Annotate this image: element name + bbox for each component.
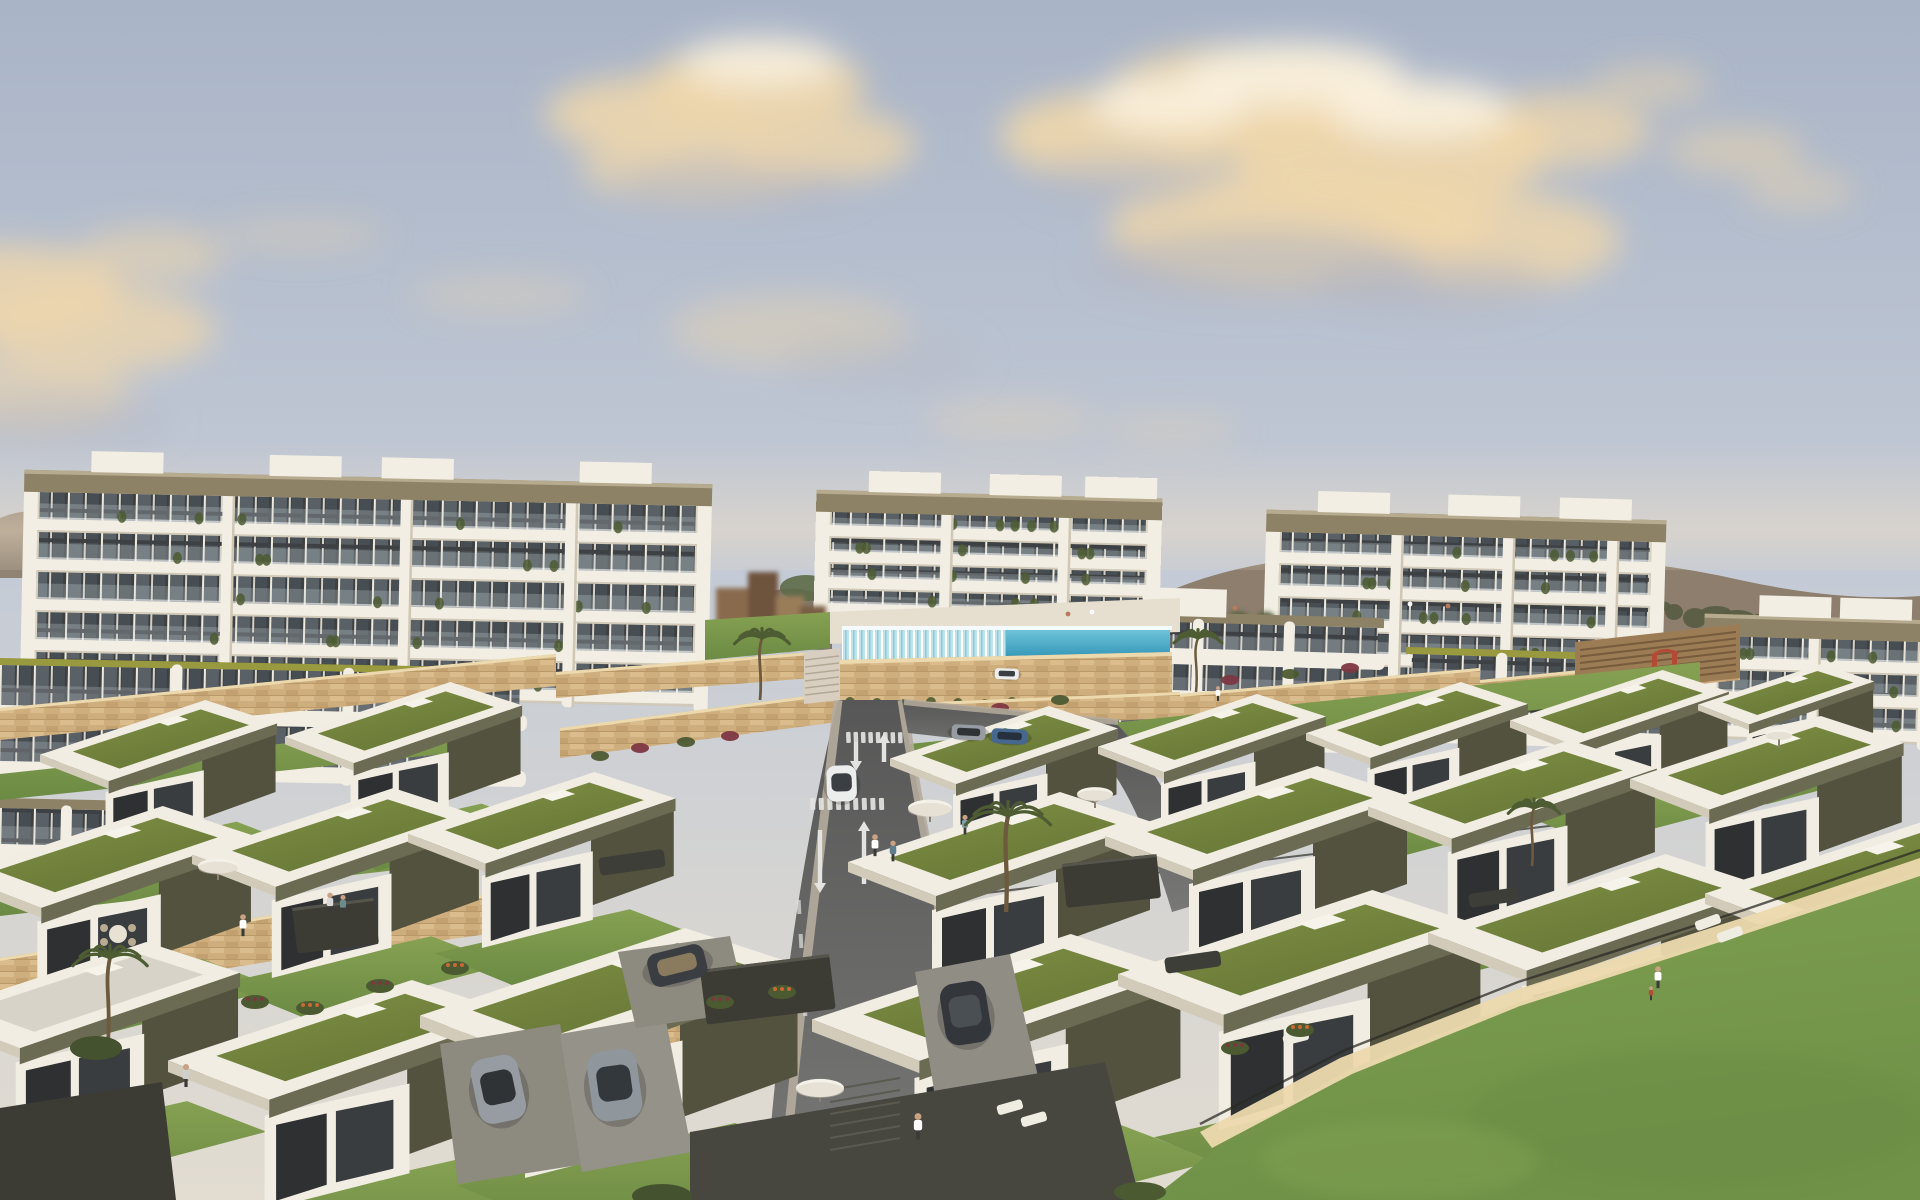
person-legs bbox=[916, 1129, 920, 1139]
scene-canvas: Architectural visualization at golden ho… bbox=[0, 0, 1920, 1200]
person-torso bbox=[327, 898, 333, 906]
planter-flower bbox=[385, 981, 389, 985]
cloud-puff bbox=[615, 161, 855, 209]
planter-flower bbox=[371, 981, 375, 985]
flower-bush bbox=[591, 751, 609, 761]
person-legs bbox=[892, 853, 895, 861]
person-torso bbox=[240, 920, 247, 929]
dining-chair bbox=[100, 938, 108, 946]
car-cabin bbox=[947, 993, 983, 1029]
rooftop-unit bbox=[269, 455, 341, 478]
crosswalk-bar bbox=[853, 732, 858, 743]
pool-rim bbox=[842, 626, 1172, 630]
pool-waterfall-edge bbox=[842, 630, 1006, 660]
lawn-shading bbox=[1470, 1050, 1920, 1190]
person-head bbox=[1655, 966, 1661, 972]
planter-flower bbox=[1298, 1025, 1302, 1029]
crosswalk-bar bbox=[810, 798, 815, 810]
cloud-puff bbox=[1090, 79, 1250, 131]
flower-bush bbox=[1281, 669, 1299, 679]
crosswalk-bar bbox=[898, 732, 903, 743]
crosswalk-bar bbox=[890, 732, 895, 743]
planter-flower bbox=[260, 997, 264, 1001]
person-legs bbox=[1217, 695, 1219, 701]
person-torso bbox=[340, 900, 346, 908]
person-torso bbox=[872, 840, 879, 849]
wall-planter bbox=[1221, 1041, 1249, 1055]
rooftop-unit bbox=[869, 471, 942, 494]
rooftop-unit bbox=[1085, 476, 1158, 499]
crosswalk-bar bbox=[861, 732, 866, 743]
crosswalk-bar bbox=[819, 798, 824, 810]
crosswalk-bar bbox=[879, 798, 884, 810]
person-head bbox=[1216, 686, 1220, 690]
planter-flower bbox=[301, 1003, 305, 1007]
planter-flower bbox=[246, 997, 250, 1001]
wall-planter bbox=[296, 1001, 324, 1015]
pool-deck-person bbox=[1408, 602, 1413, 607]
pool-deck-person bbox=[1090, 610, 1095, 615]
person-head bbox=[872, 834, 878, 840]
pool-deck-person bbox=[1233, 606, 1238, 611]
cloud-puff bbox=[780, 330, 980, 390]
person-legs bbox=[1650, 995, 1652, 1000]
crosswalk-bar bbox=[862, 798, 867, 810]
rooftop-unit bbox=[1448, 495, 1521, 518]
planter-flower bbox=[773, 987, 777, 991]
cloud-puff bbox=[680, 38, 840, 86]
car-cabin bbox=[999, 671, 1016, 677]
cloud-puff bbox=[1030, 152, 1210, 208]
person-torso bbox=[182, 1070, 189, 1079]
wall-planter bbox=[441, 961, 469, 975]
crosswalk-bar bbox=[846, 732, 851, 743]
ridge-tree bbox=[1665, 604, 1683, 620]
villa-glass-door bbox=[536, 864, 580, 927]
lane-dash bbox=[797, 900, 802, 914]
flower-bush bbox=[631, 743, 649, 753]
foreground-bush bbox=[70, 1036, 122, 1060]
dining-chair bbox=[128, 924, 136, 932]
wall-planter bbox=[706, 995, 734, 1009]
person-head bbox=[1649, 986, 1653, 990]
flower-bush bbox=[677, 737, 695, 747]
planter-flower bbox=[460, 963, 464, 967]
crosswalk-bar bbox=[870, 798, 875, 810]
cloud-puff bbox=[1665, 126, 1805, 174]
planter-flower bbox=[711, 997, 715, 1001]
person-torso bbox=[1655, 972, 1662, 981]
person-legs bbox=[964, 827, 967, 835]
palm-trunk bbox=[107, 958, 110, 1042]
rooftop-unit bbox=[989, 474, 1062, 497]
umbrella-underside bbox=[796, 1082, 844, 1097]
wall-planter bbox=[366, 979, 394, 993]
planter-flower bbox=[453, 963, 457, 967]
flower-bush bbox=[721, 731, 739, 741]
car-cabin bbox=[997, 732, 1022, 741]
pool-deck-person bbox=[1066, 612, 1071, 617]
wall-planter bbox=[768, 985, 796, 999]
person-head bbox=[340, 895, 345, 900]
rooftop-unit bbox=[1840, 598, 1913, 621]
terrace-stairs bbox=[804, 648, 840, 704]
planter-flower bbox=[725, 997, 729, 1001]
render-image: Architectural visualization at golden ho… bbox=[0, 0, 1920, 1200]
person-legs bbox=[184, 1078, 187, 1087]
villa-glass-door bbox=[336, 1100, 394, 1183]
planter-flower bbox=[378, 981, 382, 985]
person-torso bbox=[890, 846, 896, 854]
flower-bush bbox=[1221, 675, 1239, 685]
lane-dash bbox=[799, 934, 804, 948]
wall-planter bbox=[241, 995, 269, 1009]
block-end-wall bbox=[813, 504, 830, 622]
dining-table bbox=[109, 925, 127, 943]
person-head bbox=[240, 914, 246, 920]
planter-flower bbox=[718, 997, 722, 1001]
wall-planter bbox=[1286, 1023, 1314, 1037]
car-cabin bbox=[831, 773, 852, 792]
planter-flower bbox=[1240, 1043, 1244, 1047]
person-head bbox=[327, 893, 332, 898]
cloud-puff bbox=[1310, 255, 1550, 315]
rooftop-unit bbox=[1318, 491, 1391, 514]
dining-chair bbox=[128, 938, 136, 946]
umbrella-underside bbox=[1077, 790, 1113, 802]
cloud-puff bbox=[925, 402, 1095, 438]
cloud-puff bbox=[1745, 170, 1855, 210]
planter-flower bbox=[1233, 1043, 1237, 1047]
cloud-puff bbox=[1330, 80, 1510, 140]
planter-flower bbox=[787, 987, 791, 991]
rooftop-unit bbox=[91, 451, 163, 474]
person-head bbox=[962, 815, 967, 820]
person-legs bbox=[342, 907, 345, 915]
planter-flower bbox=[446, 963, 450, 967]
umbrella-underside bbox=[198, 862, 238, 875]
planter-flower bbox=[1226, 1043, 1230, 1047]
cloud-puff bbox=[1590, 65, 1710, 105]
planter-flower bbox=[1305, 1025, 1309, 1029]
person-torso bbox=[1649, 990, 1653, 995]
person-legs bbox=[329, 905, 332, 913]
umbrella-underside bbox=[908, 803, 952, 817]
flower-bush bbox=[1341, 663, 1359, 673]
cloud-puff bbox=[215, 217, 385, 253]
rooftop-unit bbox=[1559, 498, 1632, 521]
villa-glass-door bbox=[276, 1113, 327, 1200]
rooftop-unit bbox=[580, 461, 652, 484]
lawn-shading bbox=[1260, 1120, 1540, 1200]
cloud-puff bbox=[410, 275, 590, 315]
umbrella-underside bbox=[1766, 732, 1792, 740]
planter-flower bbox=[1291, 1025, 1295, 1029]
car-cabin bbox=[957, 728, 980, 737]
person-head bbox=[915, 1113, 922, 1120]
car-cabin bbox=[595, 1063, 634, 1102]
person-torso bbox=[914, 1120, 922, 1130]
crosswalk-bar bbox=[868, 732, 873, 743]
palm-trunk bbox=[1005, 816, 1008, 912]
dining-chair bbox=[100, 924, 108, 932]
planter-flower bbox=[315, 1003, 319, 1007]
pool-deck-person bbox=[1446, 604, 1451, 609]
planter-flower bbox=[308, 1003, 312, 1007]
cloud-puff bbox=[75, 227, 225, 283]
person-torso bbox=[1216, 690, 1221, 696]
flower-bush bbox=[1051, 695, 1069, 705]
planter-flower bbox=[780, 987, 784, 991]
rooftop-unit bbox=[1759, 595, 1832, 618]
person-head bbox=[890, 841, 895, 846]
person-legs bbox=[1656, 980, 1659, 989]
planter-flower bbox=[253, 997, 257, 1001]
person-legs bbox=[241, 928, 244, 937]
person-legs bbox=[873, 848, 876, 857]
person-head bbox=[183, 1064, 189, 1070]
rooftop-unit bbox=[382, 457, 454, 480]
